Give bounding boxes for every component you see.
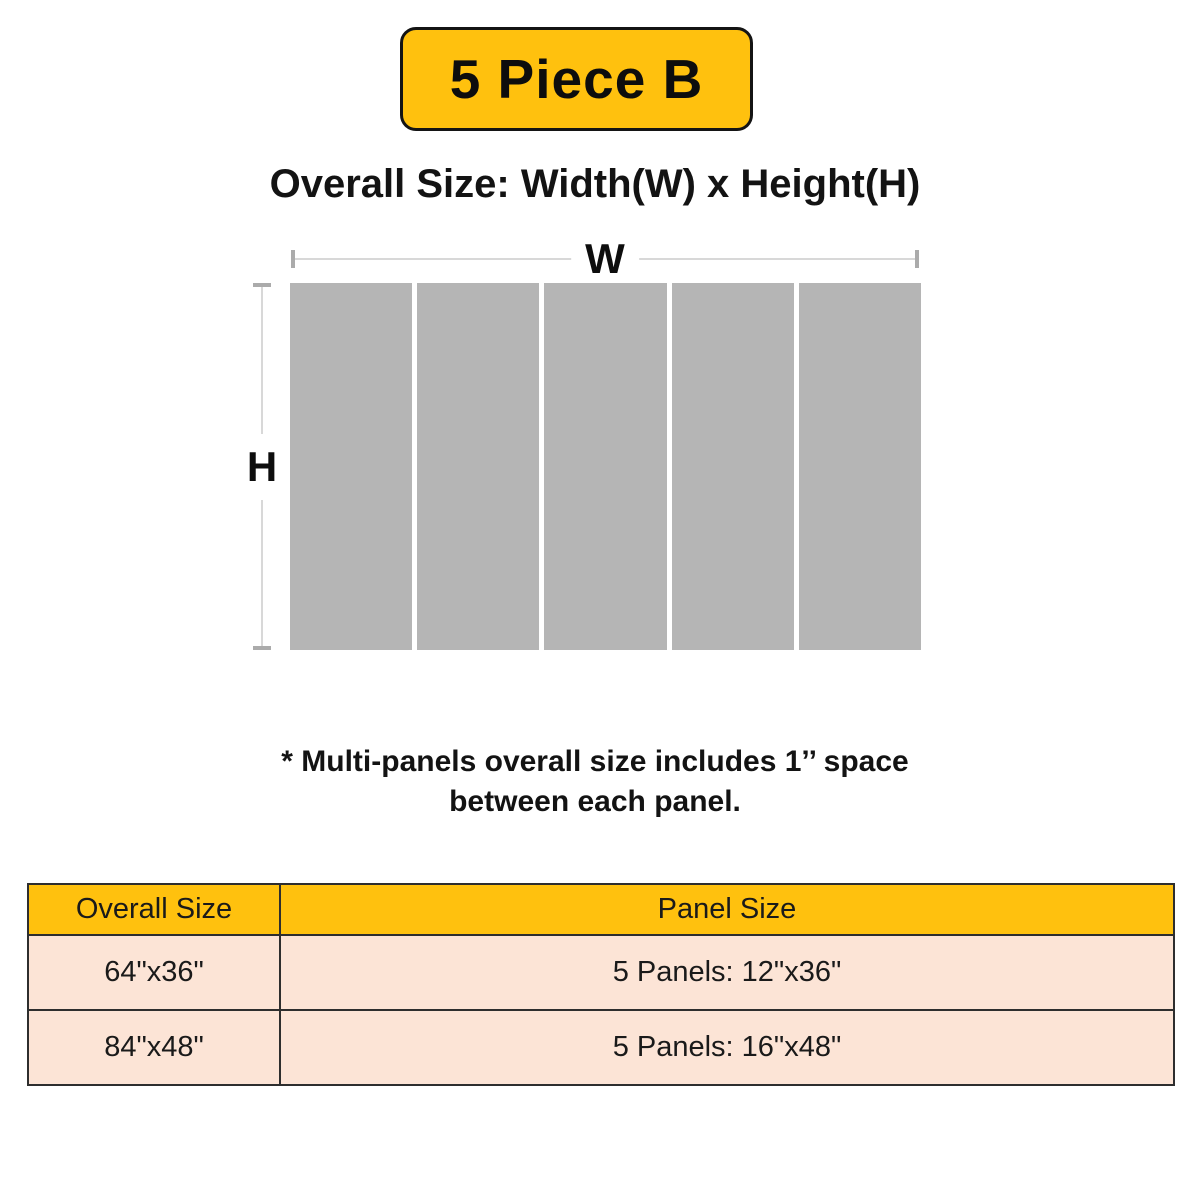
table-header-row: Overall Size Panel Size: [28, 884, 1174, 935]
width-dimension-cap-left: [291, 250, 295, 268]
height-label: H: [239, 434, 285, 500]
panel: [672, 283, 794, 650]
multi-panel-note: * Multi-panels overall size includes 1’’…: [0, 742, 1190, 822]
table-row: 84"x48" 5 Panels: 16"x48": [28, 1010, 1174, 1085]
header-overall-size: Overall Size: [28, 884, 280, 935]
panel-size-cell: 5 Panels: 12"x36": [280, 935, 1174, 1010]
page-title: Overall Size: Width(W) x Height(H): [0, 162, 1190, 207]
height-dimension-cap-bottom: [253, 646, 271, 650]
panel: [417, 283, 539, 650]
panel: [290, 283, 412, 650]
piece-count-badge: 5 Piece B: [400, 27, 753, 131]
panel: [544, 283, 666, 650]
note-line-2: between each panel.: [0, 782, 1190, 822]
panel-size-cell: 5 Panels: 16"x48": [280, 1010, 1174, 1085]
height-dimension: H: [239, 283, 285, 650]
note-line-1: * Multi-panels overall size includes 1’’…: [0, 742, 1190, 782]
panel-group: [290, 283, 921, 650]
overall-size-cell: 84"x48": [28, 1010, 280, 1085]
size-table: Overall Size Panel Size 64"x36" 5 Panels…: [27, 883, 1175, 1086]
piece-count-label: 5 Piece B: [450, 47, 704, 111]
width-dimension-cap-right: [915, 250, 919, 268]
overall-size-cell: 64"x36": [28, 935, 280, 1010]
width-dimension: W: [291, 234, 919, 284]
width-label: W: [571, 238, 639, 280]
table-row: 64"x36" 5 Panels: 12"x36": [28, 935, 1174, 1010]
size-infographic: 5 Piece B Overall Size: Width(W) x Heigh…: [0, 0, 1200, 1200]
header-panel-size: Panel Size: [280, 884, 1174, 935]
height-dimension-cap-top: [253, 283, 271, 287]
panel: [799, 283, 921, 650]
